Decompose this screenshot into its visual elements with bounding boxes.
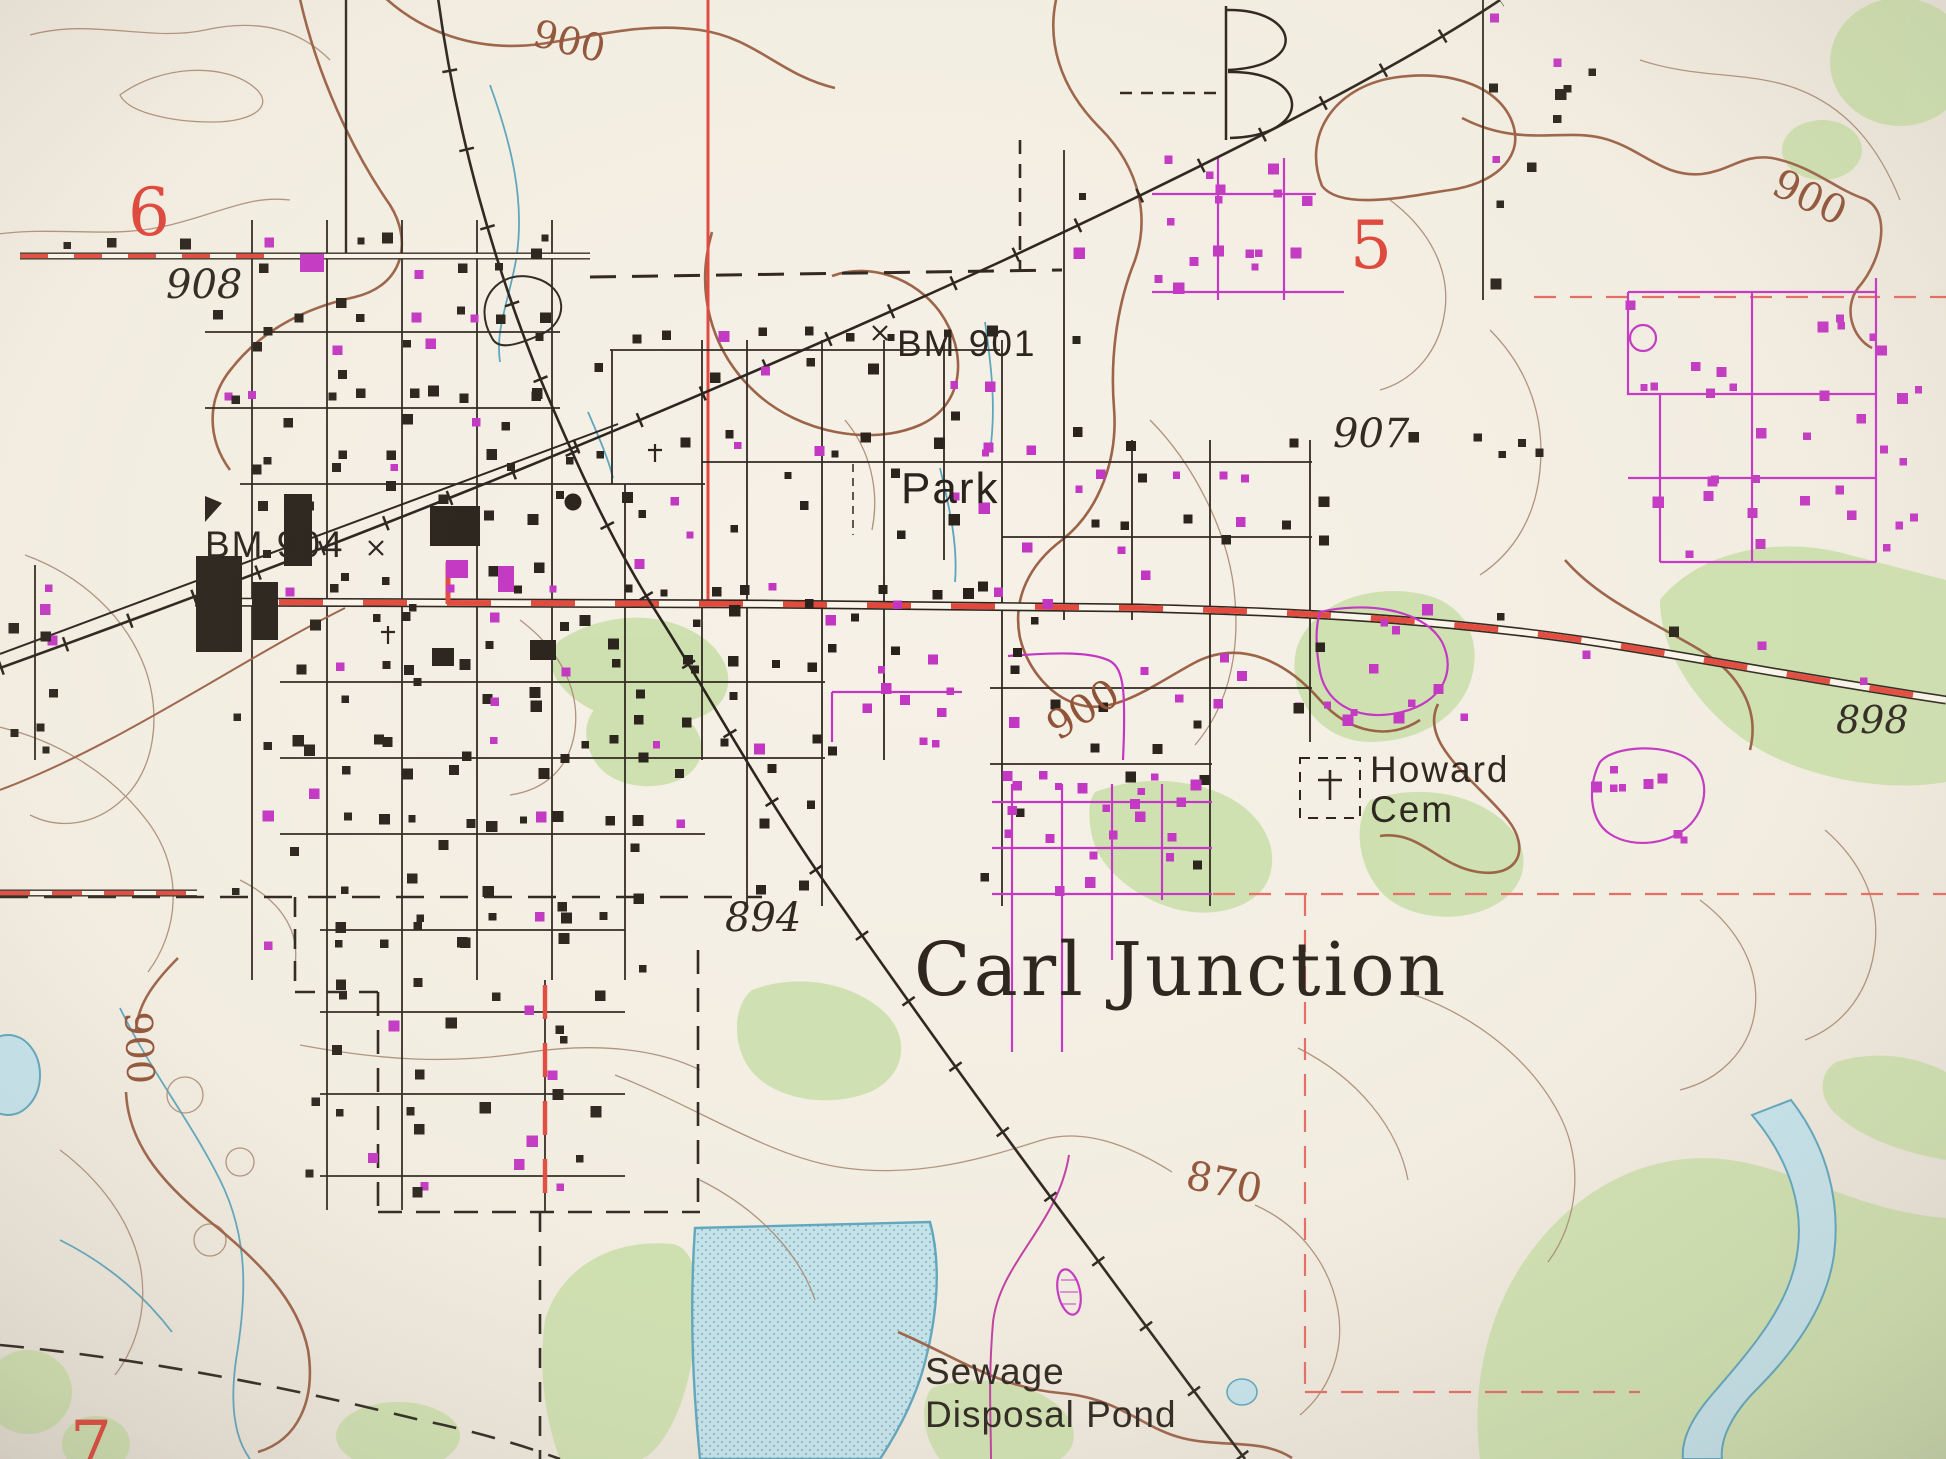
topo-map: 6 5 7 908 907 894 898 BM 901 BM 904 900 … [0, 0, 1946, 1459]
map-photo: 6 5 7 908 907 894 898 BM 901 BM 904 900 … [0, 0, 1946, 1459]
photo-vignette [0, 0, 1946, 1459]
